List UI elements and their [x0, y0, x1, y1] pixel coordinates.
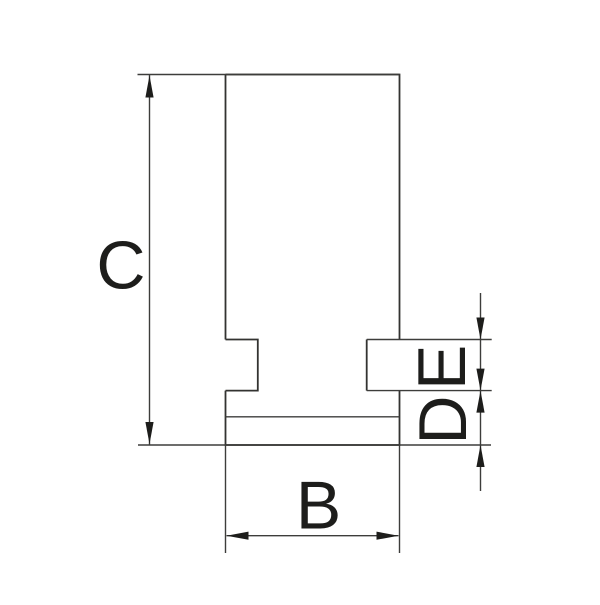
svg-text:B: B — [296, 468, 341, 544]
svg-text:D: D — [405, 395, 481, 444]
svg-text:E: E — [404, 345, 480, 390]
svg-text:C: C — [96, 228, 145, 304]
